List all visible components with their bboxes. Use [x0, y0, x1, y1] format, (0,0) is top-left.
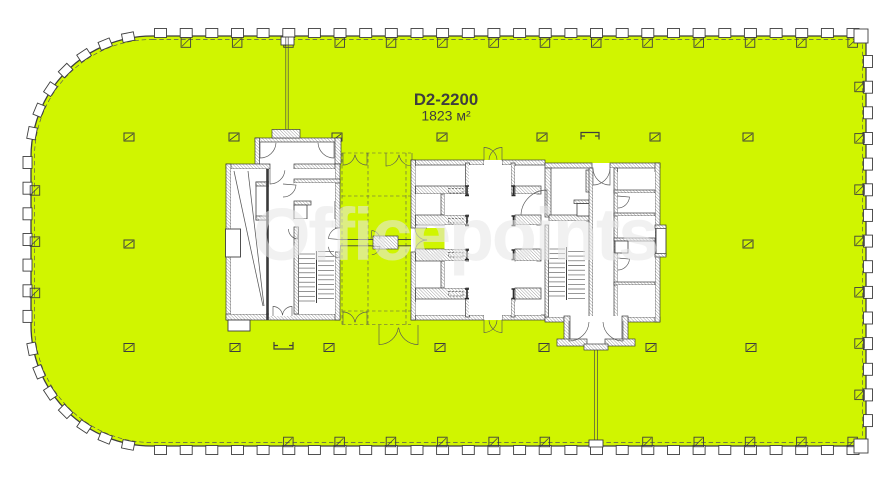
svg-text:Officepoints: Officepoints [253, 193, 657, 276]
svg-text:D2-2200: D2-2200 [414, 90, 478, 109]
svg-text:1823 м²: 1823 м² [421, 108, 471, 124]
